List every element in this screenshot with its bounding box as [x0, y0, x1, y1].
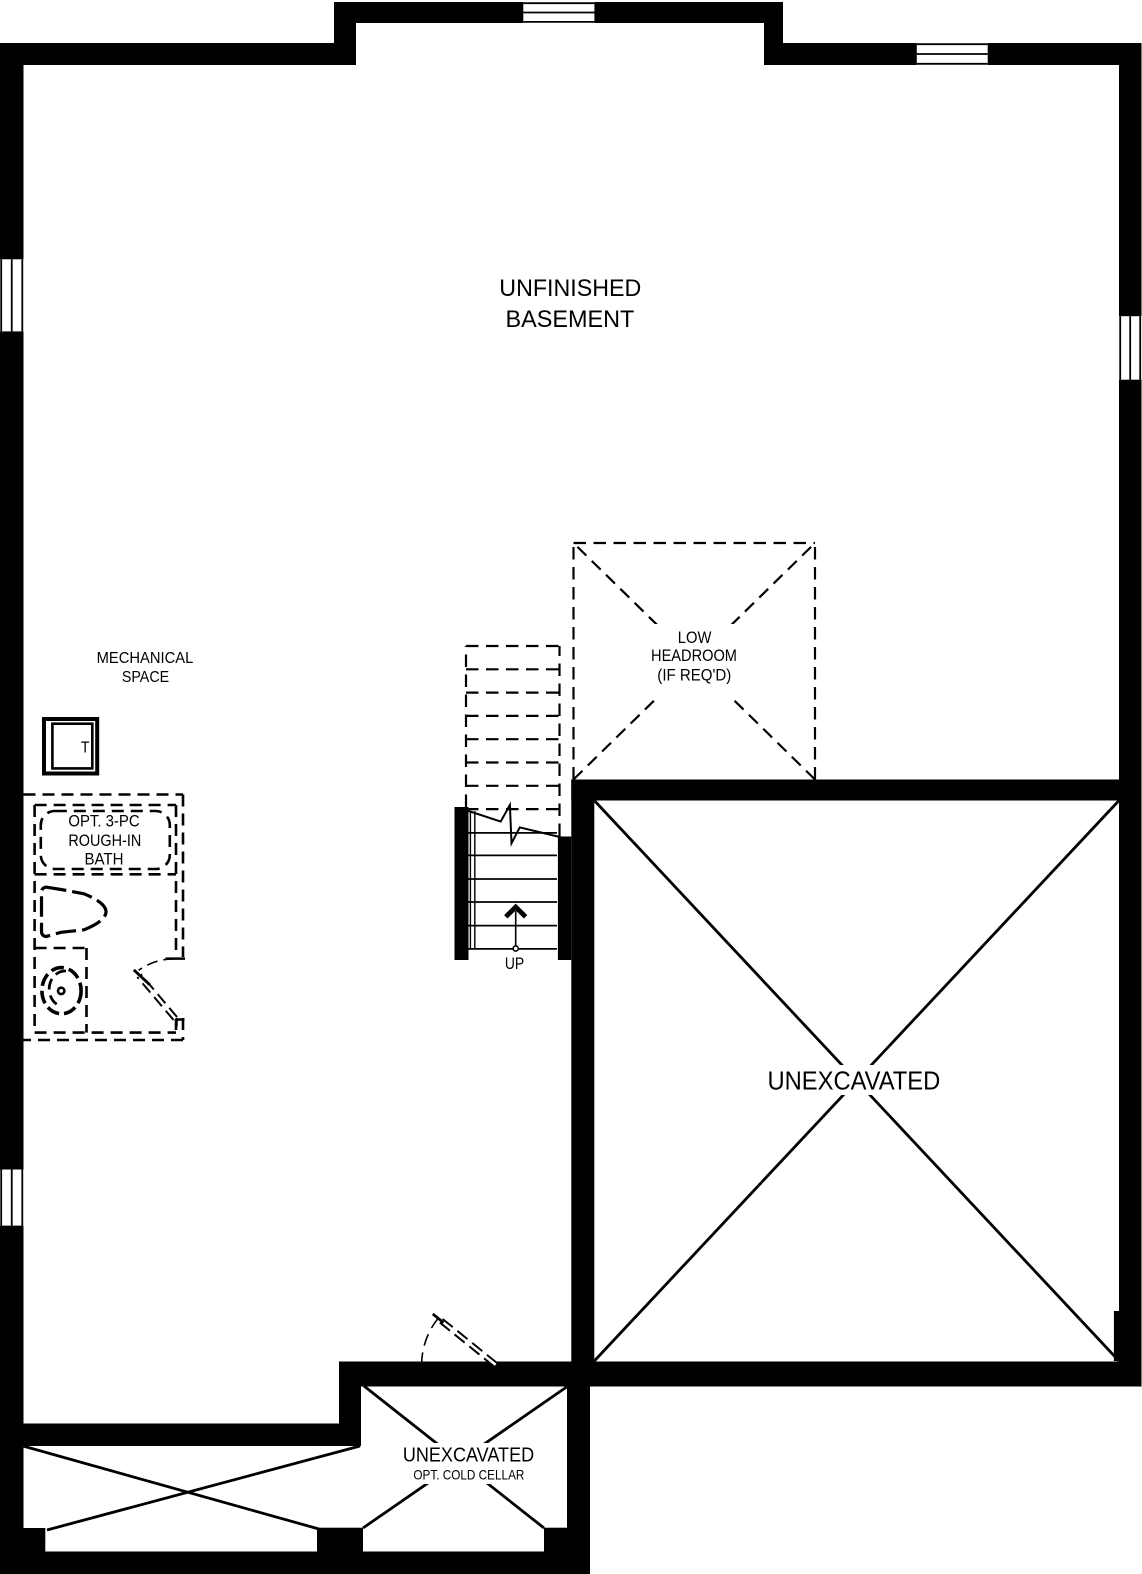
svg-text:OPT. 3-PC: OPT. 3-PC: [68, 812, 139, 830]
svg-text:UNEXCAVATED: UNEXCAVATED: [768, 1067, 941, 1095]
svg-text:MECHANICAL: MECHANICAL: [97, 650, 194, 667]
svg-text:UNEXCAVATED: UNEXCAVATED: [403, 1445, 534, 1467]
svg-text:UP: UP: [505, 954, 524, 973]
svg-text:UNFINISHED: UNFINISHED: [499, 275, 641, 302]
svg-text:LOW: LOW: [678, 629, 712, 647]
svg-text:HEADROOM: HEADROOM: [651, 647, 737, 665]
svg-text:OPT. COLD CELLAR: OPT. COLD CELLAR: [413, 1467, 524, 1482]
svg-text:SPACE: SPACE: [122, 669, 169, 686]
svg-text:ROUGH-IN: ROUGH-IN: [68, 832, 141, 850]
svg-text:T: T: [81, 739, 90, 756]
svg-text:BASEMENT: BASEMENT: [506, 306, 635, 333]
svg-text:BATH: BATH: [84, 851, 123, 869]
svg-text:(IF REQ'D): (IF REQ'D): [657, 666, 731, 684]
